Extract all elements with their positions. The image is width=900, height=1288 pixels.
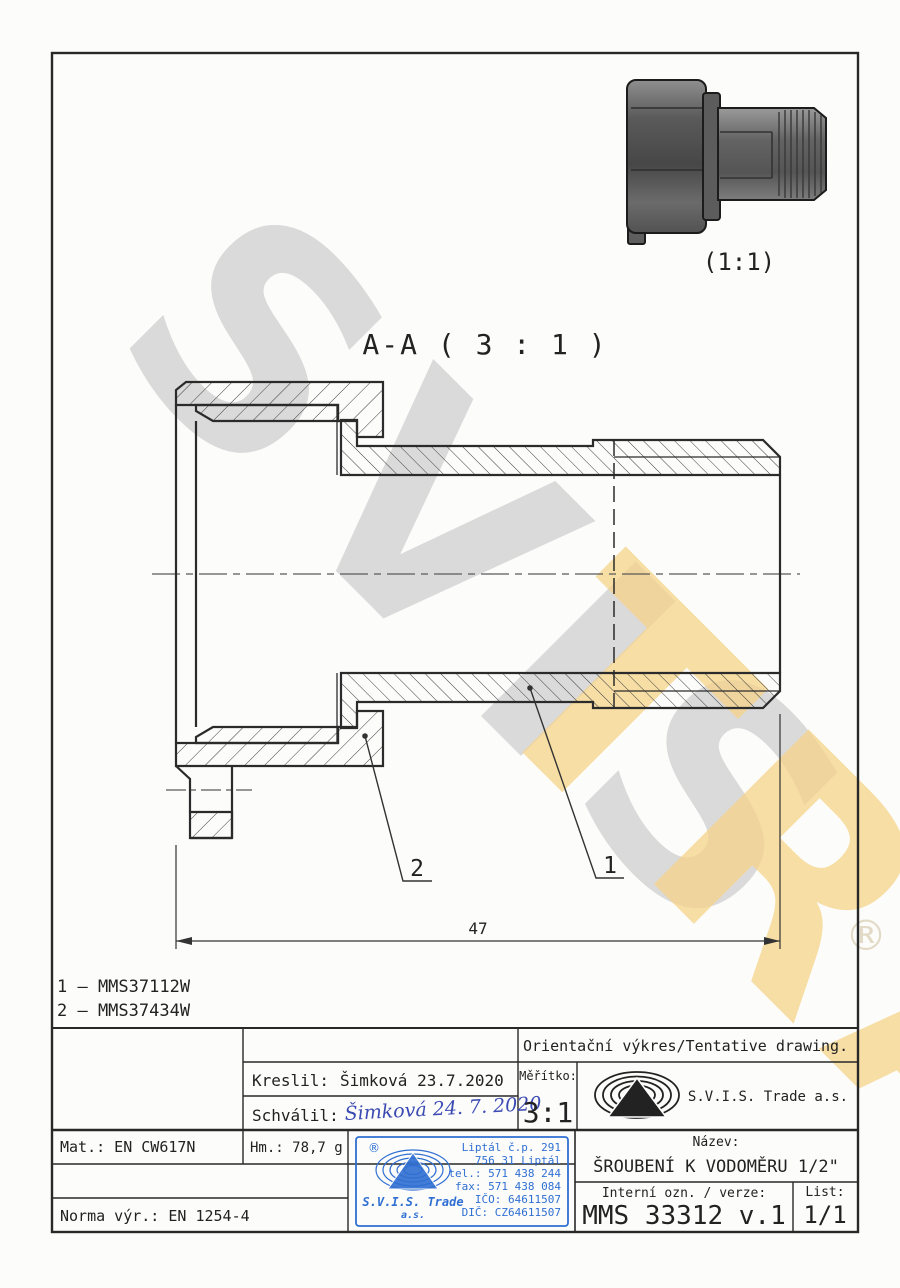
schvalil-label: Schválil: <box>252 1106 339 1125</box>
stamp-registered-icon: ® <box>368 1141 380 1155</box>
stamp-address: Liptál č.p. 291 756 31 Liptál tel.: 571 … <box>448 1141 561 1219</box>
svg-text:fax: 571 438 084: fax: 571 438 084 <box>455 1180 561 1193</box>
kreslil-value: Šimková 23.7.2020 <box>340 1071 504 1090</box>
section-title: A-A ( 3 : 1 ) <box>362 328 607 361</box>
svg-text:tel.: 571 438 244: tel.: 571 438 244 <box>448 1167 561 1180</box>
svg-text:DIČ: CZ64611507: DIČ: CZ64611507 <box>462 1206 561 1219</box>
interni-label: Interní ozn. / verze: <box>602 1186 766 1201</box>
schvalil-signature: Šimková 24. 7. 2020 <box>344 1092 542 1125</box>
meritko-value: 3:1 <box>523 1096 574 1129</box>
photo-scale-label: (1:1) <box>703 248 775 276</box>
company-logo-icon <box>595 1072 679 1118</box>
dimension-47-value: 47 <box>468 919 487 938</box>
nazev-label: Název: <box>693 1135 740 1150</box>
company-name: S.V.I.S. Trade a.s. <box>688 1089 848 1105</box>
list-value: 1/1 <box>803 1201 846 1229</box>
norma-value: Norma výr.: EN 1254-4 <box>60 1207 250 1225</box>
meritko-label: Měřítko: <box>519 1069 577 1083</box>
balloon-1-label: 1 <box>603 853 617 879</box>
tentative-note: Orientační výkres/Tentative drawing. <box>523 1037 848 1055</box>
registered-watermark-icon: ® <box>845 911 887 960</box>
interni-value: MMS 33312 v.1 <box>582 1201 786 1231</box>
parts-list-item-2: 2 – MMS37434W <box>57 1001 191 1021</box>
stamp-company: S.V.I.S. Trade <box>362 1195 463 1209</box>
company-stamp: ® S.V.I.S. Trade a.s. Liptál č.p. 291 75… <box>356 1137 568 1226</box>
balloon-2-label: 2 <box>410 856 424 882</box>
svg-text:756 31 Liptál: 756 31 Liptál <box>475 1154 561 1167</box>
list-label: List: <box>805 1185 844 1200</box>
svg-text:IČO: 64611507: IČO: 64611507 <box>475 1193 561 1206</box>
nazev-value: ŠROUBENÍ K VODOMĚRU 1/2" <box>593 1155 839 1177</box>
svg-text:Liptál č.p. 291: Liptál č.p. 291 <box>462 1141 561 1154</box>
drawing-sheet: SVIS TRADE ® (1:1) A-A ( 3 : 1 ) <box>0 0 900 1288</box>
kreslil-label: Kreslil: <box>252 1071 329 1090</box>
weight-value: Hm.: 78,7 g <box>250 1140 343 1156</box>
stamp-company-suffix: a.s. <box>401 1210 425 1221</box>
part-3d-render <box>627 80 826 244</box>
parts-list-item-1: 1 – MMS37112W <box>57 977 191 997</box>
material-value: Mat.: EN CW617N <box>60 1138 195 1156</box>
stamp-logo-icon <box>376 1150 450 1190</box>
